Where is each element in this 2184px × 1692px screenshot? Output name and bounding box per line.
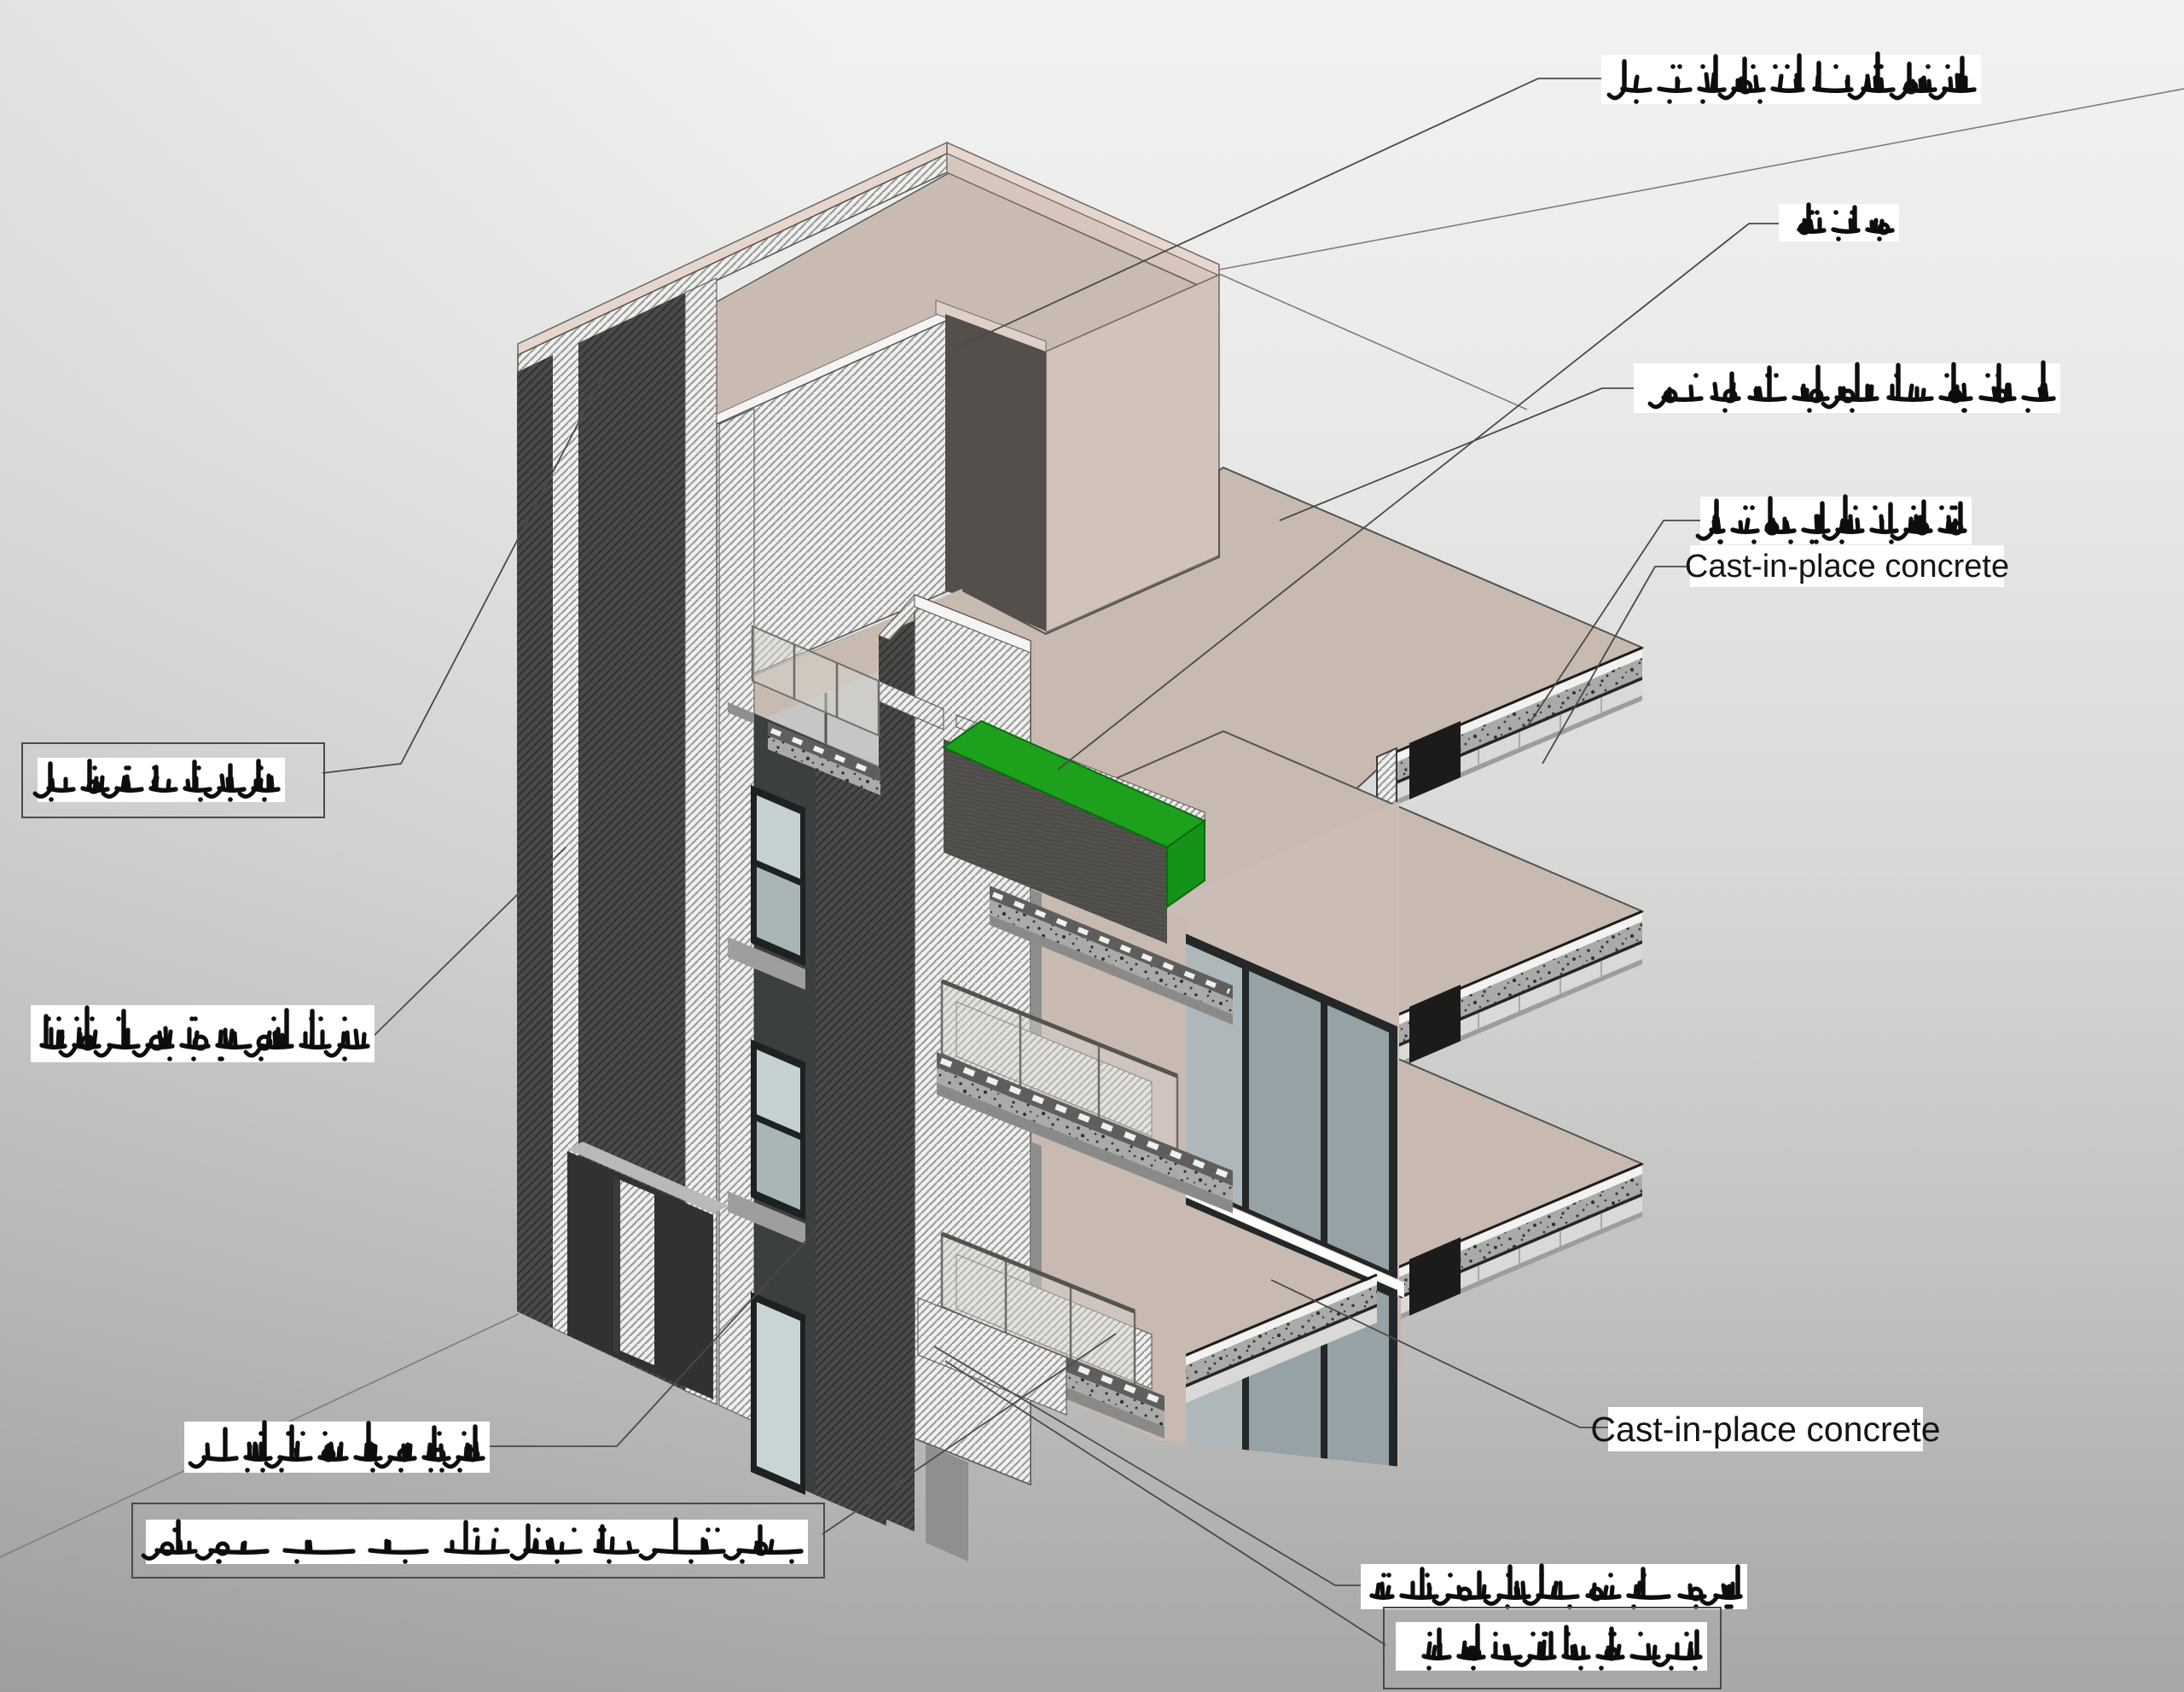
svg-text:Cast-in-place concrete: Cast-in-place concrete [1685, 549, 2009, 584]
svg-text:Cast-in-place concrete: Cast-in-place concrete [1590, 1410, 1940, 1449]
